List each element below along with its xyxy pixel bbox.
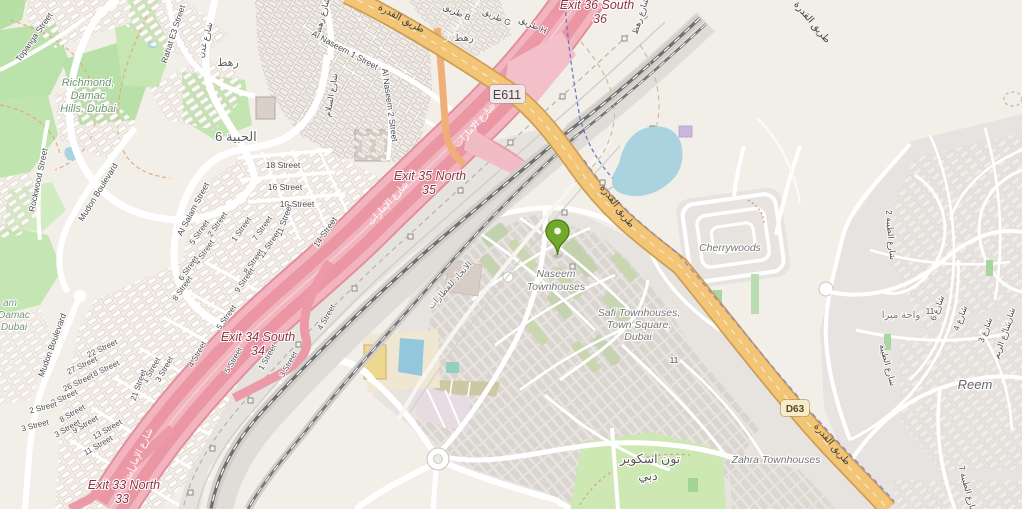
svg-text:E611: E611 [493,88,521,102]
svg-text:am: am [3,298,17,309]
svg-text:16 Street: 16 Street [268,182,303,192]
svg-text:D63: D63 [786,404,805,415]
svg-text:Richmond,: Richmond, [62,77,115,89]
svg-text:11: 11 [926,306,935,316]
svg-text:Exit 33 North: Exit 33 North [88,478,160,492]
svg-text:Reem: Reem [958,377,993,392]
svg-text:Dubai: Dubai [1,322,28,333]
svg-text:تون اسكوير: تون اسكوير [619,452,681,467]
svg-text:رهط: رهط [217,57,239,69]
svg-text:36: 36 [593,12,607,26]
svg-text:Damac: Damac [0,310,30,321]
svg-text:رهط: رهط [454,33,474,44]
svg-text:Town Square,: Town Square, [607,319,671,331]
svg-text:Damac: Damac [71,90,106,102]
svg-text:دبي: دبي [638,469,658,483]
svg-text:Cherrywoods: Cherrywoods [699,242,762,254]
svg-text:Naseem: Naseem [536,268,575,280]
svg-text:Exit 36 South: Exit 36 South [560,0,634,12]
svg-text:11: 11 [670,355,679,365]
svg-text:Townhouses: Townhouses [527,281,586,293]
svg-text:Dubai: Dubai [624,331,652,343]
svg-text:واحة ميرا: واحة ميرا [882,310,921,321]
svg-text:Zahra Townhouses: Zahra Townhouses [731,454,822,466]
svg-text:Safi Townhouses,: Safi Townhouses, [598,307,681,319]
svg-text:Hills, Dubai: Hills, Dubai [60,103,116,115]
svg-text:Exit 34 South: Exit 34 South [221,330,295,344]
svg-text:الحبية 6: الحبية 6 [215,129,257,144]
svg-text:18 Street: 18 Street [266,160,301,170]
svg-text:33: 33 [115,492,129,506]
svg-text:35: 35 [422,183,436,197]
